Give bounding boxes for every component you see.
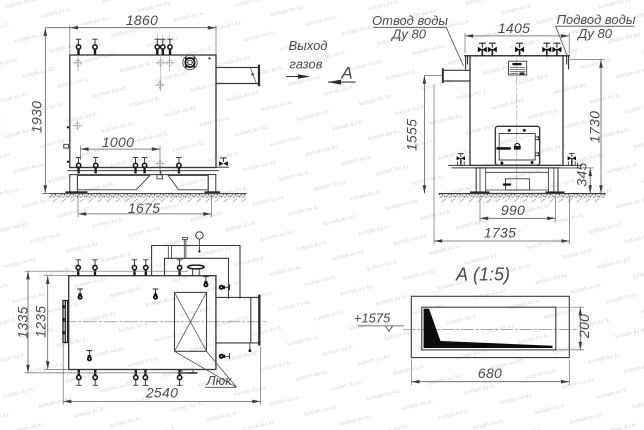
- svg-text:1735: 1735: [484, 225, 516, 241]
- svg-text:200: 200: [576, 314, 592, 339]
- svg-text:1335: 1335: [15, 306, 31, 338]
- svg-text:1405: 1405: [498, 20, 530, 36]
- svg-text:990: 990: [501, 202, 525, 218]
- svg-text:1235: 1235: [33, 306, 49, 338]
- svg-text:1730: 1730: [586, 111, 602, 143]
- svg-text:Подвод воды: Подвод воды: [557, 12, 636, 27]
- svg-text:газов: газов: [289, 57, 322, 72]
- svg-text:А: А: [340, 64, 352, 83]
- svg-text:1675: 1675: [128, 200, 160, 216]
- svg-text:1930: 1930: [29, 101, 45, 133]
- svg-text:А (1:5): А (1:5): [455, 265, 510, 285]
- svg-text:2540: 2540: [145, 385, 178, 401]
- svg-text:1000: 1000: [102, 134, 134, 150]
- svg-text:1860: 1860: [126, 12, 158, 28]
- svg-text:Люк: Люк: [206, 373, 233, 388]
- svg-text:680: 680: [478, 365, 502, 381]
- svg-text:1555: 1555: [403, 119, 419, 151]
- svg-text:Ду 80: Ду 80: [576, 26, 613, 41]
- svg-text:Выход: Выход: [288, 38, 327, 53]
- svg-text:345: 345: [574, 162, 590, 186]
- svg-text:Ду 80: Ду 80: [390, 27, 427, 42]
- svg-text:+1575: +1575: [354, 311, 391, 326]
